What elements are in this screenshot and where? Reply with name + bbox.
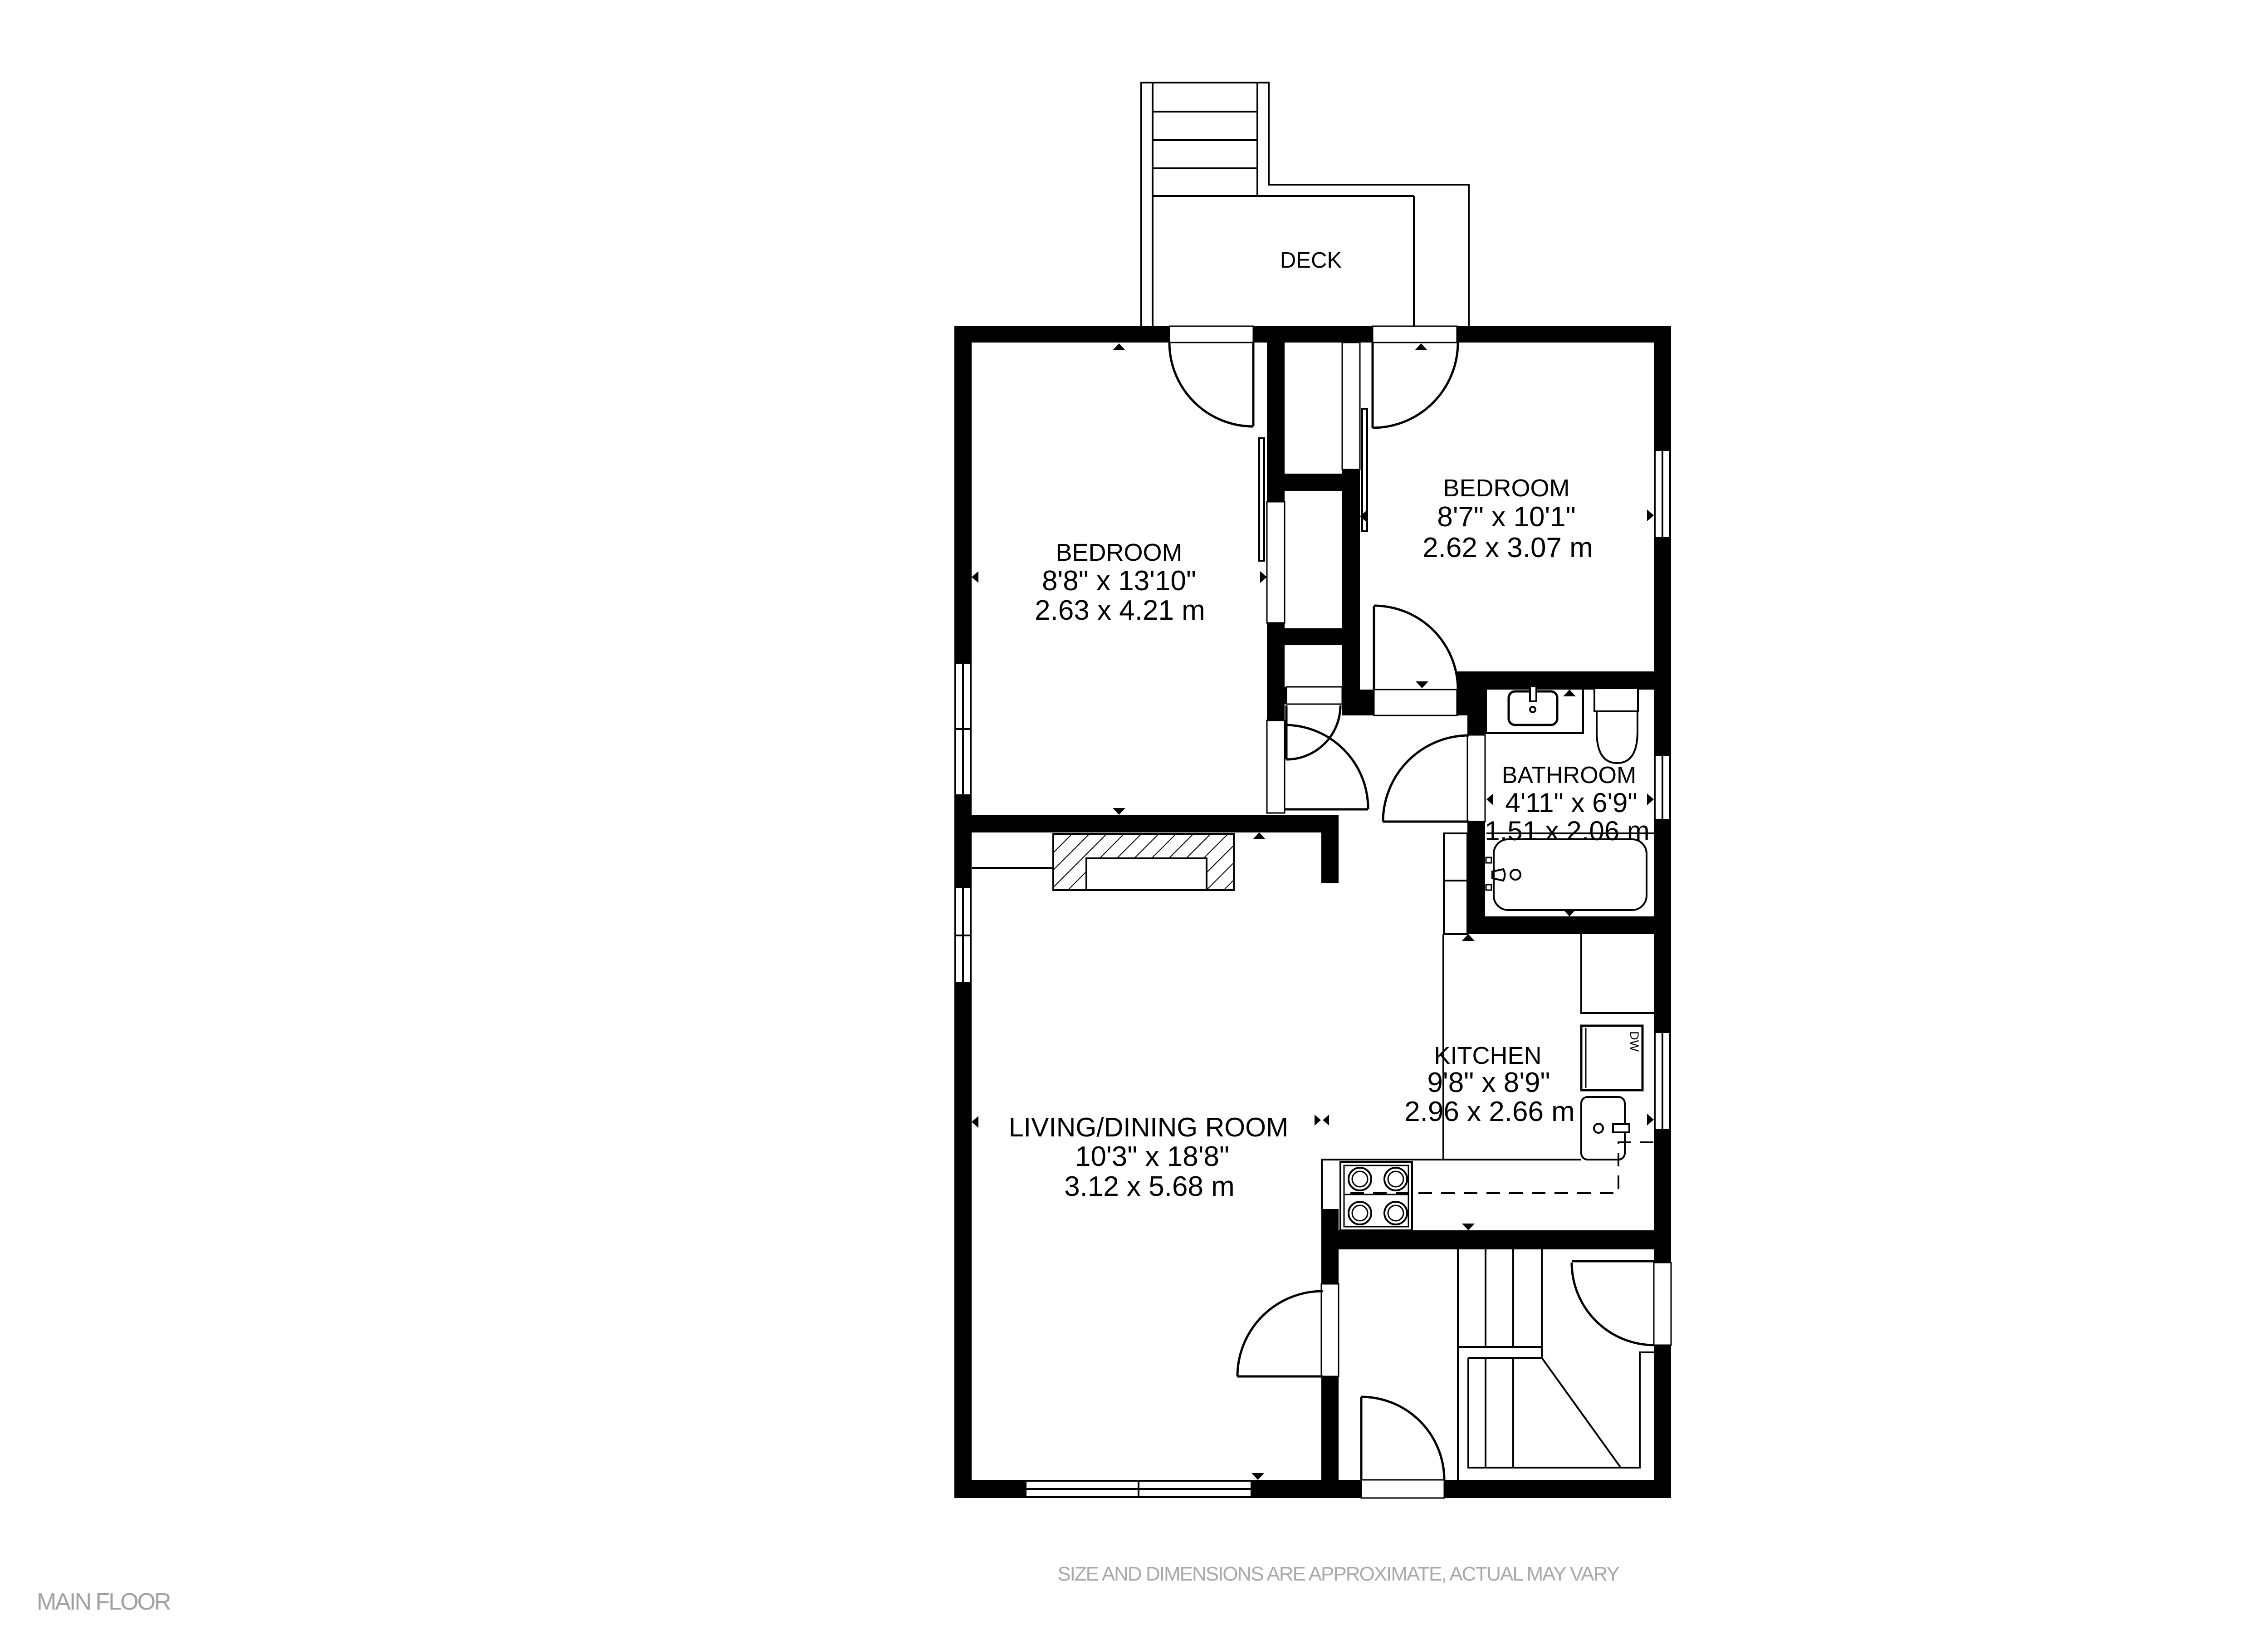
svg-text:LIVING/DINING ROOM: LIVING/DINING ROOM: [1009, 1112, 1288, 1142]
svg-text:8'7" x 10'1": 8'7" x 10'1": [1437, 501, 1576, 533]
svg-text:10'3" x 18'8": 10'3" x 18'8": [1075, 1141, 1229, 1172]
svg-text:SIZE AND DIMENSIONS ARE APPROX: SIZE AND DIMENSIONS ARE APPROXIMATE, ACT…: [1057, 1563, 1619, 1585]
svg-text:DECK: DECK: [1280, 248, 1342, 273]
svg-text:BEDROOM: BEDROOM: [1056, 539, 1182, 566]
svg-text:BEDROOM: BEDROOM: [1443, 475, 1569, 502]
svg-text:9'8" x 8'9": 9'8" x 8'9": [1427, 1067, 1550, 1098]
svg-text:2.96 x 2.66 m: 2.96 x 2.66 m: [1404, 1096, 1575, 1127]
svg-text:BATHROOM: BATHROOM: [1502, 762, 1637, 788]
svg-text:4'11" x 6'9": 4'11" x 6'9": [1505, 788, 1637, 818]
svg-text:DW: DW: [1628, 1031, 1641, 1052]
svg-text:2.63 x 4.21 m: 2.63 x 4.21 m: [1035, 595, 1205, 626]
svg-text:KITCHEN: KITCHEN: [1434, 1042, 1541, 1069]
svg-text:MAIN FLOOR: MAIN FLOOR: [37, 1589, 171, 1615]
svg-text:8'8" x 13'10": 8'8" x 13'10": [1042, 565, 1196, 597]
svg-text:3.12 x 5.68 m: 3.12 x 5.68 m: [1064, 1171, 1235, 1202]
svg-text:2.62 x 3.07 m: 2.62 x 3.07 m: [1422, 532, 1593, 563]
svg-text:1.51 x 2.06 m: 1.51 x 2.06 m: [1485, 816, 1650, 846]
